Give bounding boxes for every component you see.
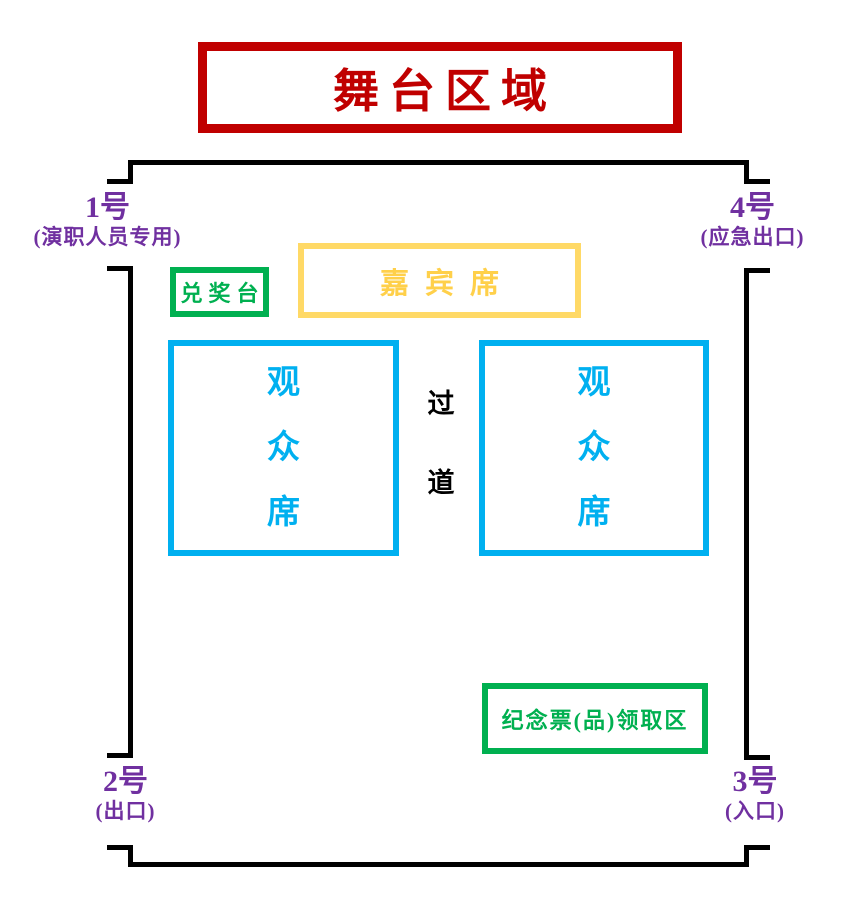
door1-gap-tick-bottom (107, 266, 133, 271)
door3-gap-tick-top (744, 755, 770, 760)
wall-bottom (128, 862, 749, 867)
door-1-note: (演职人员专用) (5, 224, 210, 250)
stage-area-label: 舞台区域 (323, 55, 557, 121)
door1-gap-tick-top (107, 179, 133, 184)
souvenir-pickup-label: 纪念票(品)领取区 (502, 703, 689, 735)
prize-desk-label: 兑奖台 (175, 276, 265, 308)
aisle-label: 过 道 (424, 391, 458, 497)
door2-gap-tick-top (107, 753, 133, 758)
door-3-number: 3号 (655, 766, 855, 798)
door-4-note: (应急出口) (645, 224, 860, 250)
audience-right-char-3: 席 (578, 497, 611, 530)
door-3-label: 3号 (入口) (655, 766, 855, 824)
wall-right-segment (744, 268, 749, 760)
wall-left-segment (128, 266, 133, 758)
audience-seats-right-box: 观 众 席 (479, 340, 709, 556)
door-3-note: (入口) (655, 798, 855, 824)
audience-seats-left-label: 观 众 席 (267, 367, 300, 530)
audience-seats-left-box: 观 众 席 (168, 340, 399, 556)
door4-gap-tick-top (744, 179, 770, 184)
venue-floor-plan: 舞台区域 1号 (演职人员专用) 4号 (应急出口) 2号 (出口) 3号 (入… (0, 0, 865, 923)
vip-seats-box: 嘉宾席 (298, 243, 581, 318)
audience-seats-right-label: 观 众 席 (578, 367, 611, 530)
audience-right-char-1: 观 (578, 367, 611, 400)
door4-gap-tick-bottom (744, 268, 770, 273)
door-2-note: (出口) (28, 798, 223, 824)
door-4-label: 4号 (应急出口) (645, 192, 860, 250)
stage-area-box: 舞台区域 (198, 42, 682, 133)
vip-seats-label: 嘉宾席 (364, 260, 515, 302)
aisle-char-1: 过 (428, 391, 455, 418)
audience-right-char-2: 众 (578, 432, 611, 465)
audience-left-char-3: 席 (267, 497, 300, 530)
door-1-label: 1号 (演职人员专用) (5, 192, 210, 250)
prize-desk-box: 兑奖台 (170, 267, 269, 317)
door-2-label: 2号 (出口) (28, 766, 223, 824)
door-4-number: 4号 (645, 192, 860, 224)
audience-left-char-1: 观 (267, 367, 300, 400)
wall-top (128, 160, 749, 165)
door2-gap-tick-bottom (107, 845, 133, 850)
door3-gap-tick-bottom (744, 845, 770, 850)
door-2-number: 2号 (28, 766, 223, 798)
aisle-char-2: 道 (428, 470, 455, 497)
audience-left-char-2: 众 (267, 432, 300, 465)
souvenir-pickup-box: 纪念票(品)领取区 (482, 683, 708, 754)
door-1-number: 1号 (5, 192, 210, 224)
